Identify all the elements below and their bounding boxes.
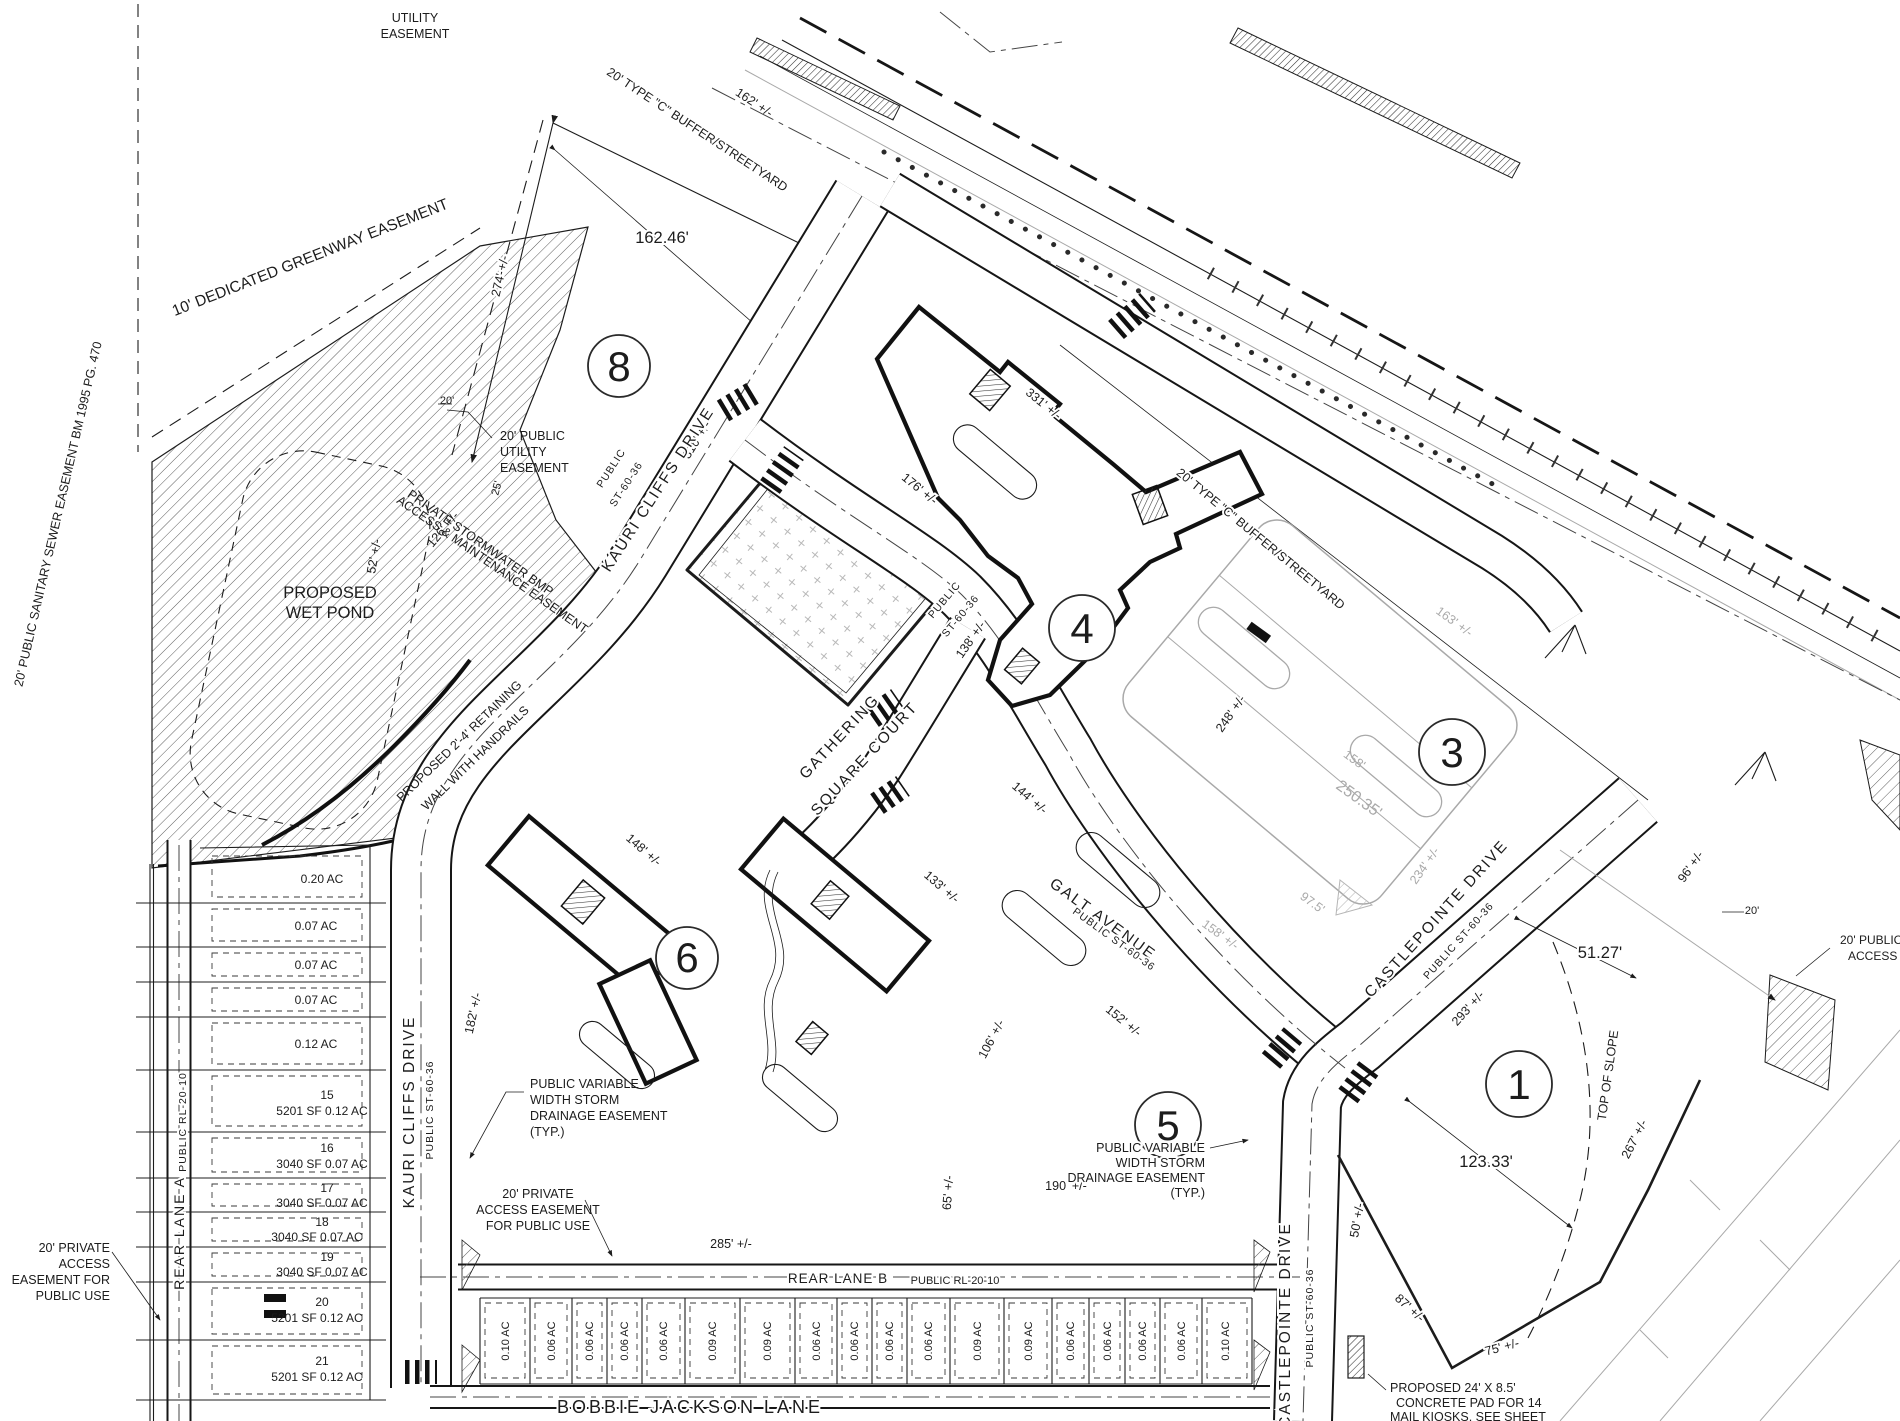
dim-267: 267' +/- [1619, 1117, 1650, 1160]
top-of-slope-label: TOP OF SLOPE [1595, 1029, 1622, 1121]
storm-easement-mid-l2: WIDTH STORM [530, 1093, 619, 1107]
street-class-rear-lane-b: PUBLIC RL-20-10 [911, 1275, 1000, 1287]
street-label-rear-lane-b: REAR LANE B [788, 1271, 888, 1286]
left-lot-detail: 5201 SF 0.12 AC [271, 1370, 363, 1384]
left-lot-labels: 0.20 AC 0.07 AC 0.07 AC 0.07 AC 0.12 AC … [271, 872, 368, 1384]
private-access-left-l2: ACCESS [59, 1257, 110, 1271]
kiosk-note-l3: MAIL KIOSKS, SEE SHEET [1390, 1410, 1546, 1421]
dim-97-5: 97.5' [1297, 889, 1327, 916]
site-plan-drawing: UTILITY EASEMENT 10' DEDICATED GREENWAY … [0, 0, 1900, 1421]
private-access-left-l3: EASEMENT FOR [12, 1273, 110, 1287]
bottom-lot-area: 0.06 AC [1137, 1321, 1149, 1360]
street-label-kauri-vert: KAURI CLIFFS DRIVE [401, 1016, 418, 1209]
kiosk-note-l1: PROPOSED 24' X 8.5' [1390, 1381, 1516, 1395]
utility-easement-label-l1: UTILITY [392, 11, 439, 25]
left-lot-number: 19 [320, 1250, 334, 1264]
pue-label-l3: EASEMENT [500, 461, 569, 475]
dim-20-right: 20' [1745, 905, 1759, 917]
left-lot-detail: 3040 SF 0.07 AC [276, 1196, 368, 1210]
parcel-3-parking-ghost [1113, 510, 1526, 915]
street-class-castlepointe-vert: PUBLIC ST-60-36 [1304, 1268, 1316, 1367]
storm-easement-mid-l3: DRAINAGE EASEMENT [530, 1109, 668, 1123]
dim-152: 152' +/- [1103, 1002, 1144, 1039]
sanitary-easement-label: 20' PUBLIC SANITARY SEWER EASEMENT BM 19… [12, 340, 105, 688]
storm-easement-right-l1: PUBLIC VARIABLE [1096, 1141, 1205, 1155]
bottom-lot-area: 0.09 AC [762, 1321, 774, 1360]
bottom-lot-area: 0.06 AC [658, 1321, 670, 1360]
bottom-lot-area: 0.10 AC [1220, 1321, 1232, 1360]
bottom-lot-area: 0.09 AC [707, 1321, 719, 1360]
parcel-8-number: 8 [607, 343, 630, 390]
dim-65: 65' +/- [940, 1175, 956, 1211]
dim-234: 234' +/- [1407, 845, 1442, 887]
left-lot-number: 20 [315, 1295, 329, 1309]
private-access-left-l4: PUBLIC USE [36, 1289, 110, 1303]
left-lot-area: 0.07 AC [295, 993, 338, 1007]
dim-162-46: 162.46' [635, 229, 689, 247]
storm-easement-right-l3: DRAINAGE EASEMENT [1067, 1171, 1205, 1185]
private-access-left-l1: 20' PRIVATE [39, 1241, 110, 1255]
bottom-lot-area: 0.09 AC [1023, 1321, 1035, 1360]
public-access-right-l1: 20' PUBLIC [1840, 933, 1900, 947]
left-lot-area: 0.07 AC [295, 919, 338, 933]
dim-51-27: 51.27' [1578, 944, 1622, 962]
left-lot-number: 15 [320, 1088, 334, 1102]
left-lot-detail: 5201 SF 0.12 AC [271, 1311, 363, 1325]
bottom-lot-area: 0.06 AC [884, 1321, 896, 1360]
kiosk-note-l2: CONCRETE PAD FOR 14 [1396, 1396, 1542, 1410]
parcel-4-number: 4 [1070, 605, 1093, 652]
buffer-streetyard-label-top: 20' TYPE "C" BUFFER/STREETYARD [604, 65, 790, 195]
dim-87: 87' +/- [1392, 1291, 1427, 1325]
dim-20-pue: 20' [440, 395, 454, 407]
bottom-lot-block [462, 1240, 1270, 1392]
private-access-mid-l3: FOR PUBLIC USE [486, 1219, 590, 1233]
bottom-lot-area: 0.06 AC [849, 1321, 861, 1360]
bottom-lot-labels: 0.10 AC 0.06 AC 0.06 AC 0.06 AC 0.06 AC … [500, 1321, 1232, 1360]
wet-pond-label-l2: WET POND [286, 604, 375, 622]
storm-easement-mid-l4: (TYP.) [530, 1125, 565, 1139]
wet-pond-label-l1: PROPOSED [283, 584, 377, 602]
bottom-lot-area: 0.06 AC [1102, 1321, 1114, 1360]
bottom-lot-area: 0.06 AC [546, 1321, 558, 1360]
dim-144: 144' +/- [1009, 779, 1050, 817]
bottom-lot-area: 0.06 AC [619, 1321, 631, 1360]
left-lot-number: 17 [320, 1181, 334, 1195]
storm-easement-right-l2: WIDTH STORM [1116, 1156, 1205, 1170]
street-label-bobbie-jackson: BOBBIE JACKSON LANE [557, 1397, 823, 1417]
left-lot-detail: 5201 SF 0.12 AC [276, 1104, 368, 1118]
left-lot-detail: 3040 SF 0.07 AC [276, 1157, 368, 1171]
pue-label-l1: 20' PUBLIC [500, 429, 565, 443]
dim-182: 182' +/- [462, 991, 484, 1035]
private-access-mid-l1: 20' PRIVATE [502, 1187, 573, 1201]
parcel-1-number: 1 [1507, 1061, 1530, 1108]
left-lot-number: 21 [315, 1354, 329, 1368]
street-class-kauri-vert: PUBLIC ST-60-36 [424, 1060, 436, 1159]
left-lot-detail: 3040 SF 0.07 AC [276, 1265, 368, 1279]
utility-easement-label-l2: EASEMENT [381, 27, 450, 41]
private-access-mid-l2: ACCESS EASEMENT [476, 1203, 600, 1217]
bottom-lot-area: 0.06 AC [584, 1321, 596, 1360]
bottom-lot-area: 0.06 AC [811, 1321, 823, 1360]
bottom-lot-area: 0.06 AC [1176, 1321, 1188, 1360]
dim-248: 248' +/- [1213, 693, 1248, 735]
storm-easement-right-l4: (TYP.) [1171, 1186, 1206, 1200]
street-class-rear-lane-a: PUBLIC RL-20-10 [177, 1072, 189, 1172]
bottom-lot-area: 0.06 AC [1065, 1321, 1077, 1360]
dim-148: 148' +/- [623, 831, 664, 869]
dim-96: 96' +/- [1675, 848, 1706, 884]
bottom-lot-area: 0.10 AC [500, 1321, 512, 1360]
public-access-right-l2: ACCESS [1848, 949, 1897, 963]
dim-106: 106' +/- [976, 1017, 1008, 1060]
dim-162: 162' +/- [733, 85, 775, 120]
parcel-6-number: 6 [675, 934, 698, 981]
dim-285: 285' +/- [710, 1237, 752, 1251]
dim-163: 163' +/- [1433, 604, 1475, 640]
left-lot-area: 0.20 AC [301, 872, 344, 886]
dim-123-33: 123.33' [1459, 1153, 1513, 1171]
dim-75: 75' +/- [1483, 1336, 1520, 1359]
left-lot-area: 0.12 AC [295, 1037, 338, 1051]
parcel-3-number: 3 [1440, 729, 1463, 776]
left-lot-area: 0.07 AC [295, 958, 338, 972]
dim-133: 133' +/- [921, 868, 962, 906]
bottom-lot-area: 0.06 AC [923, 1321, 935, 1360]
site-plan-sheet: UTILITY EASEMENT 10' DEDICATED GREENWAY … [0, 0, 1900, 1421]
left-lot-number: 18 [315, 1215, 329, 1229]
dim-50: 50' +/- [1347, 1202, 1367, 1239]
left-lot-number: 16 [320, 1141, 334, 1155]
street-label-rear-lane-a: REAR LANE A [171, 1176, 187, 1290]
pue-label-l2: UTILITY [500, 445, 547, 459]
mail-kiosk-pad [1348, 1336, 1386, 1390]
bottom-lot-area: 0.09 AC [972, 1321, 984, 1360]
dim-250-35: 250.35' [1333, 777, 1385, 821]
street-label-castlepointe-vert: CASTLEPOINTE DRIVE [1277, 1222, 1294, 1421]
left-lot-detail: 3040 SF 0.07 AC [271, 1230, 363, 1244]
parcel-5-number: 5 [1156, 1102, 1179, 1149]
storm-easement-mid-l1: PUBLIC VARIABLE [530, 1077, 639, 1091]
